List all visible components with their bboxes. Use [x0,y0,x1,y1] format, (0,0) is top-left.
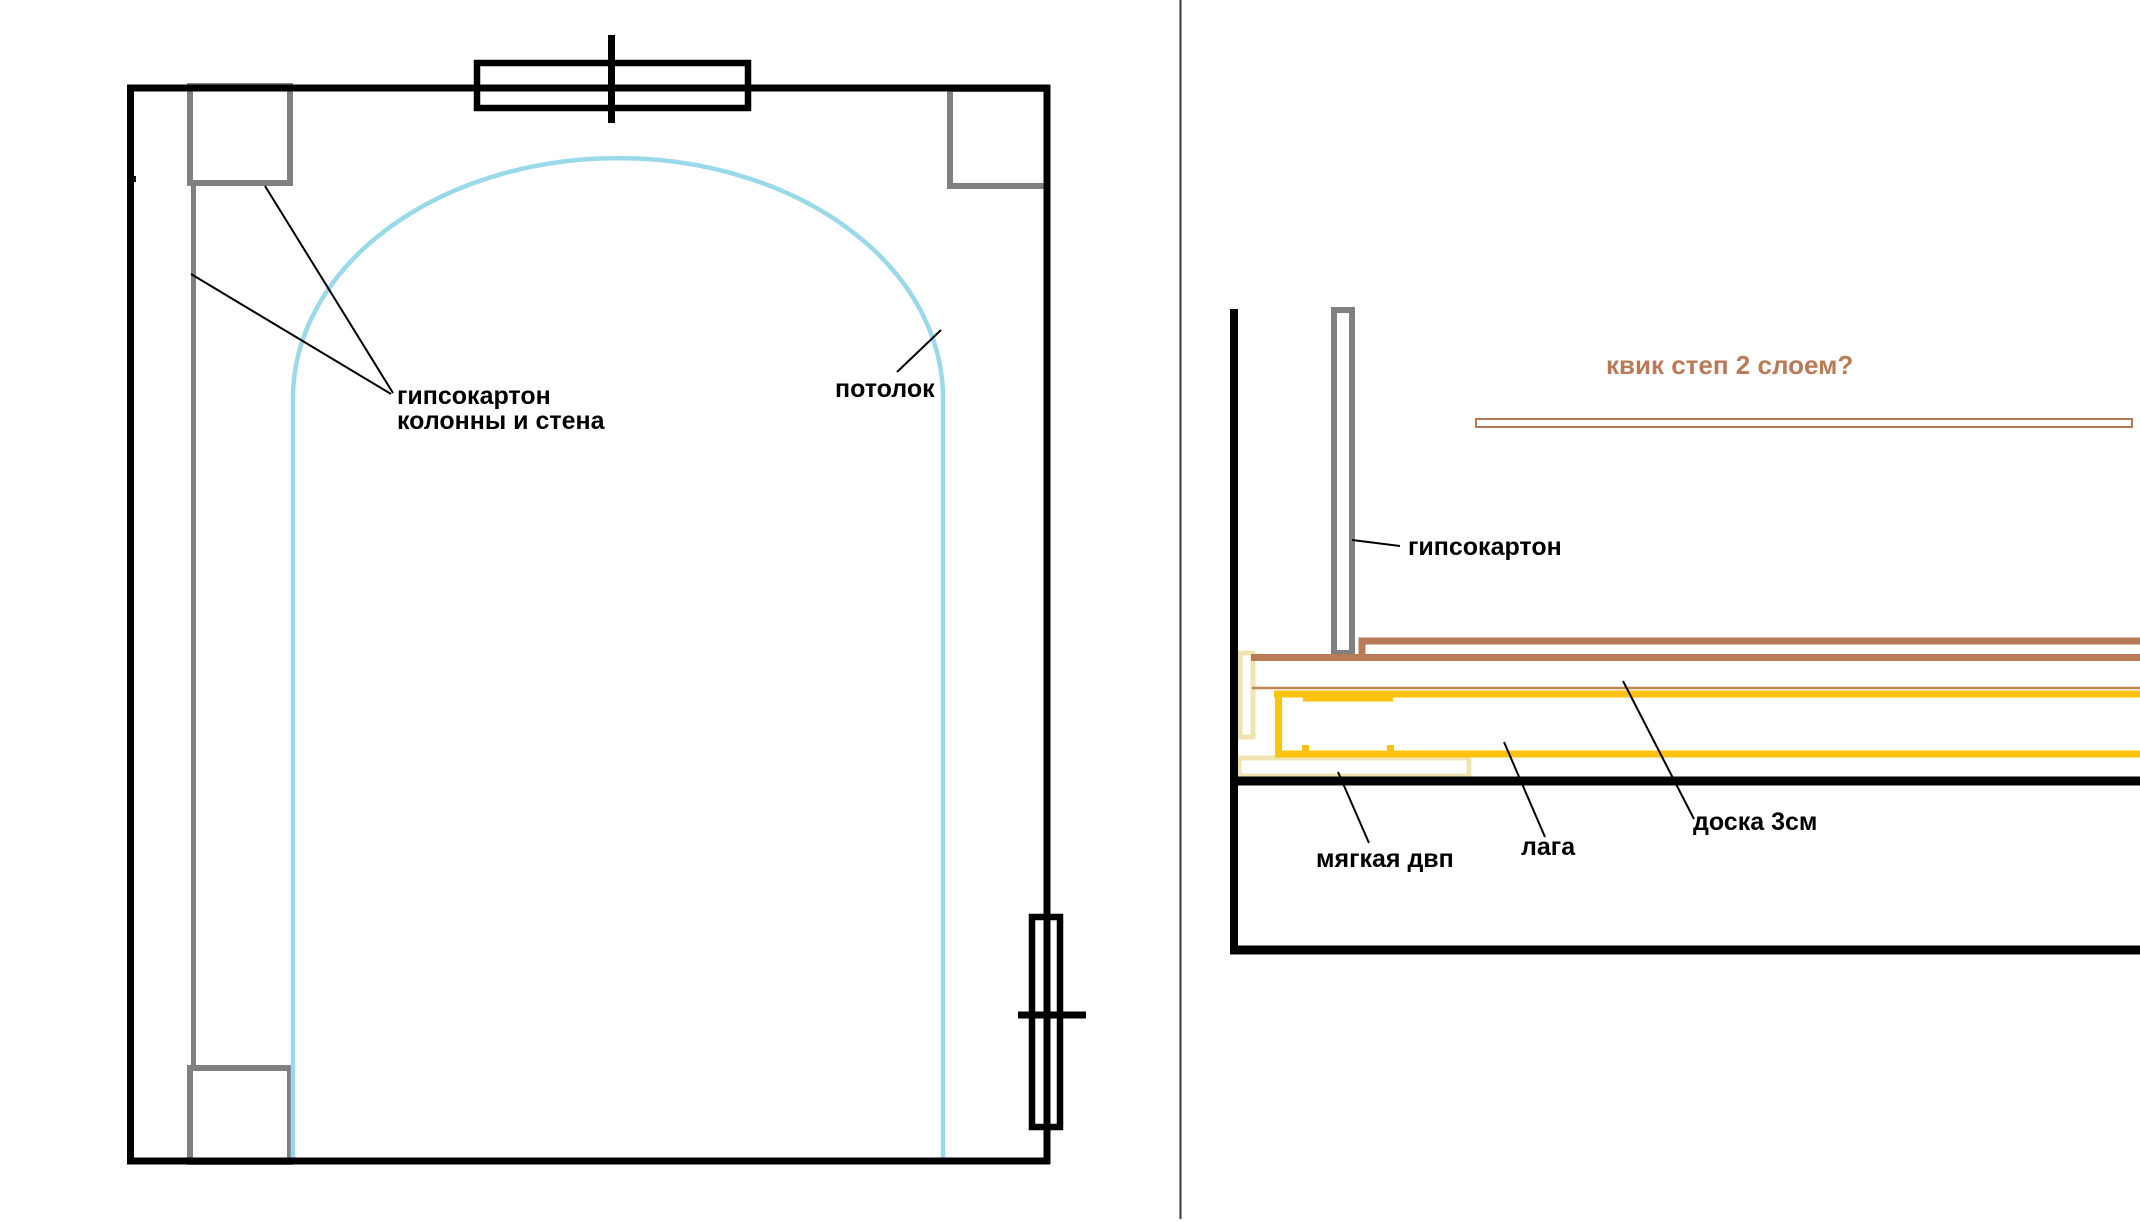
quickstep-question-label: квик степ 2 слоем? [1606,352,1853,378]
leader-wall-line [191,274,391,394]
column-square-top-right [950,89,1047,186]
joist-label: лага [1521,835,1575,860]
ceiling-arch-path [293,158,943,1162]
wall-tick-mark [127,176,136,182]
board-3cm-label: доска 3см [1693,810,1817,835]
leader-ceiling-line [897,330,941,372]
soft-fiberboard-label: мягкая двп [1316,847,1454,872]
drywall-columns-label-line1: гипсокартон [397,384,605,409]
fiberboard-vertical-rect [1240,653,1253,737]
drywall-columns-label-line2: колонны и стена [397,409,605,434]
joist-nub-left [1302,745,1309,751]
room-plan-group [127,35,1086,1164]
leader-column-line [265,186,393,393]
drywall-sheet-rect [1334,310,1352,653]
quickstep-plank-rect [1476,419,2132,427]
leader-board-line [1623,681,1694,819]
column-square-top-left [190,86,290,183]
drawing-layer [0,0,2140,1222]
paint-drawing-canvas: гипсокартон колонны и стена потолок квик… [0,0,2140,1222]
ceiling-label: потолок [835,377,935,402]
drywall-columns-label: гипсокартон колонны и стена [397,384,605,434]
drywall-label: гипсокартон [1408,535,1562,560]
column-square-bottom-left [190,1068,290,1162]
joist-nub-right [1387,745,1394,751]
fiberboard-horizontal-rect [1239,758,1469,776]
leader-drywall-line [1352,540,1400,546]
